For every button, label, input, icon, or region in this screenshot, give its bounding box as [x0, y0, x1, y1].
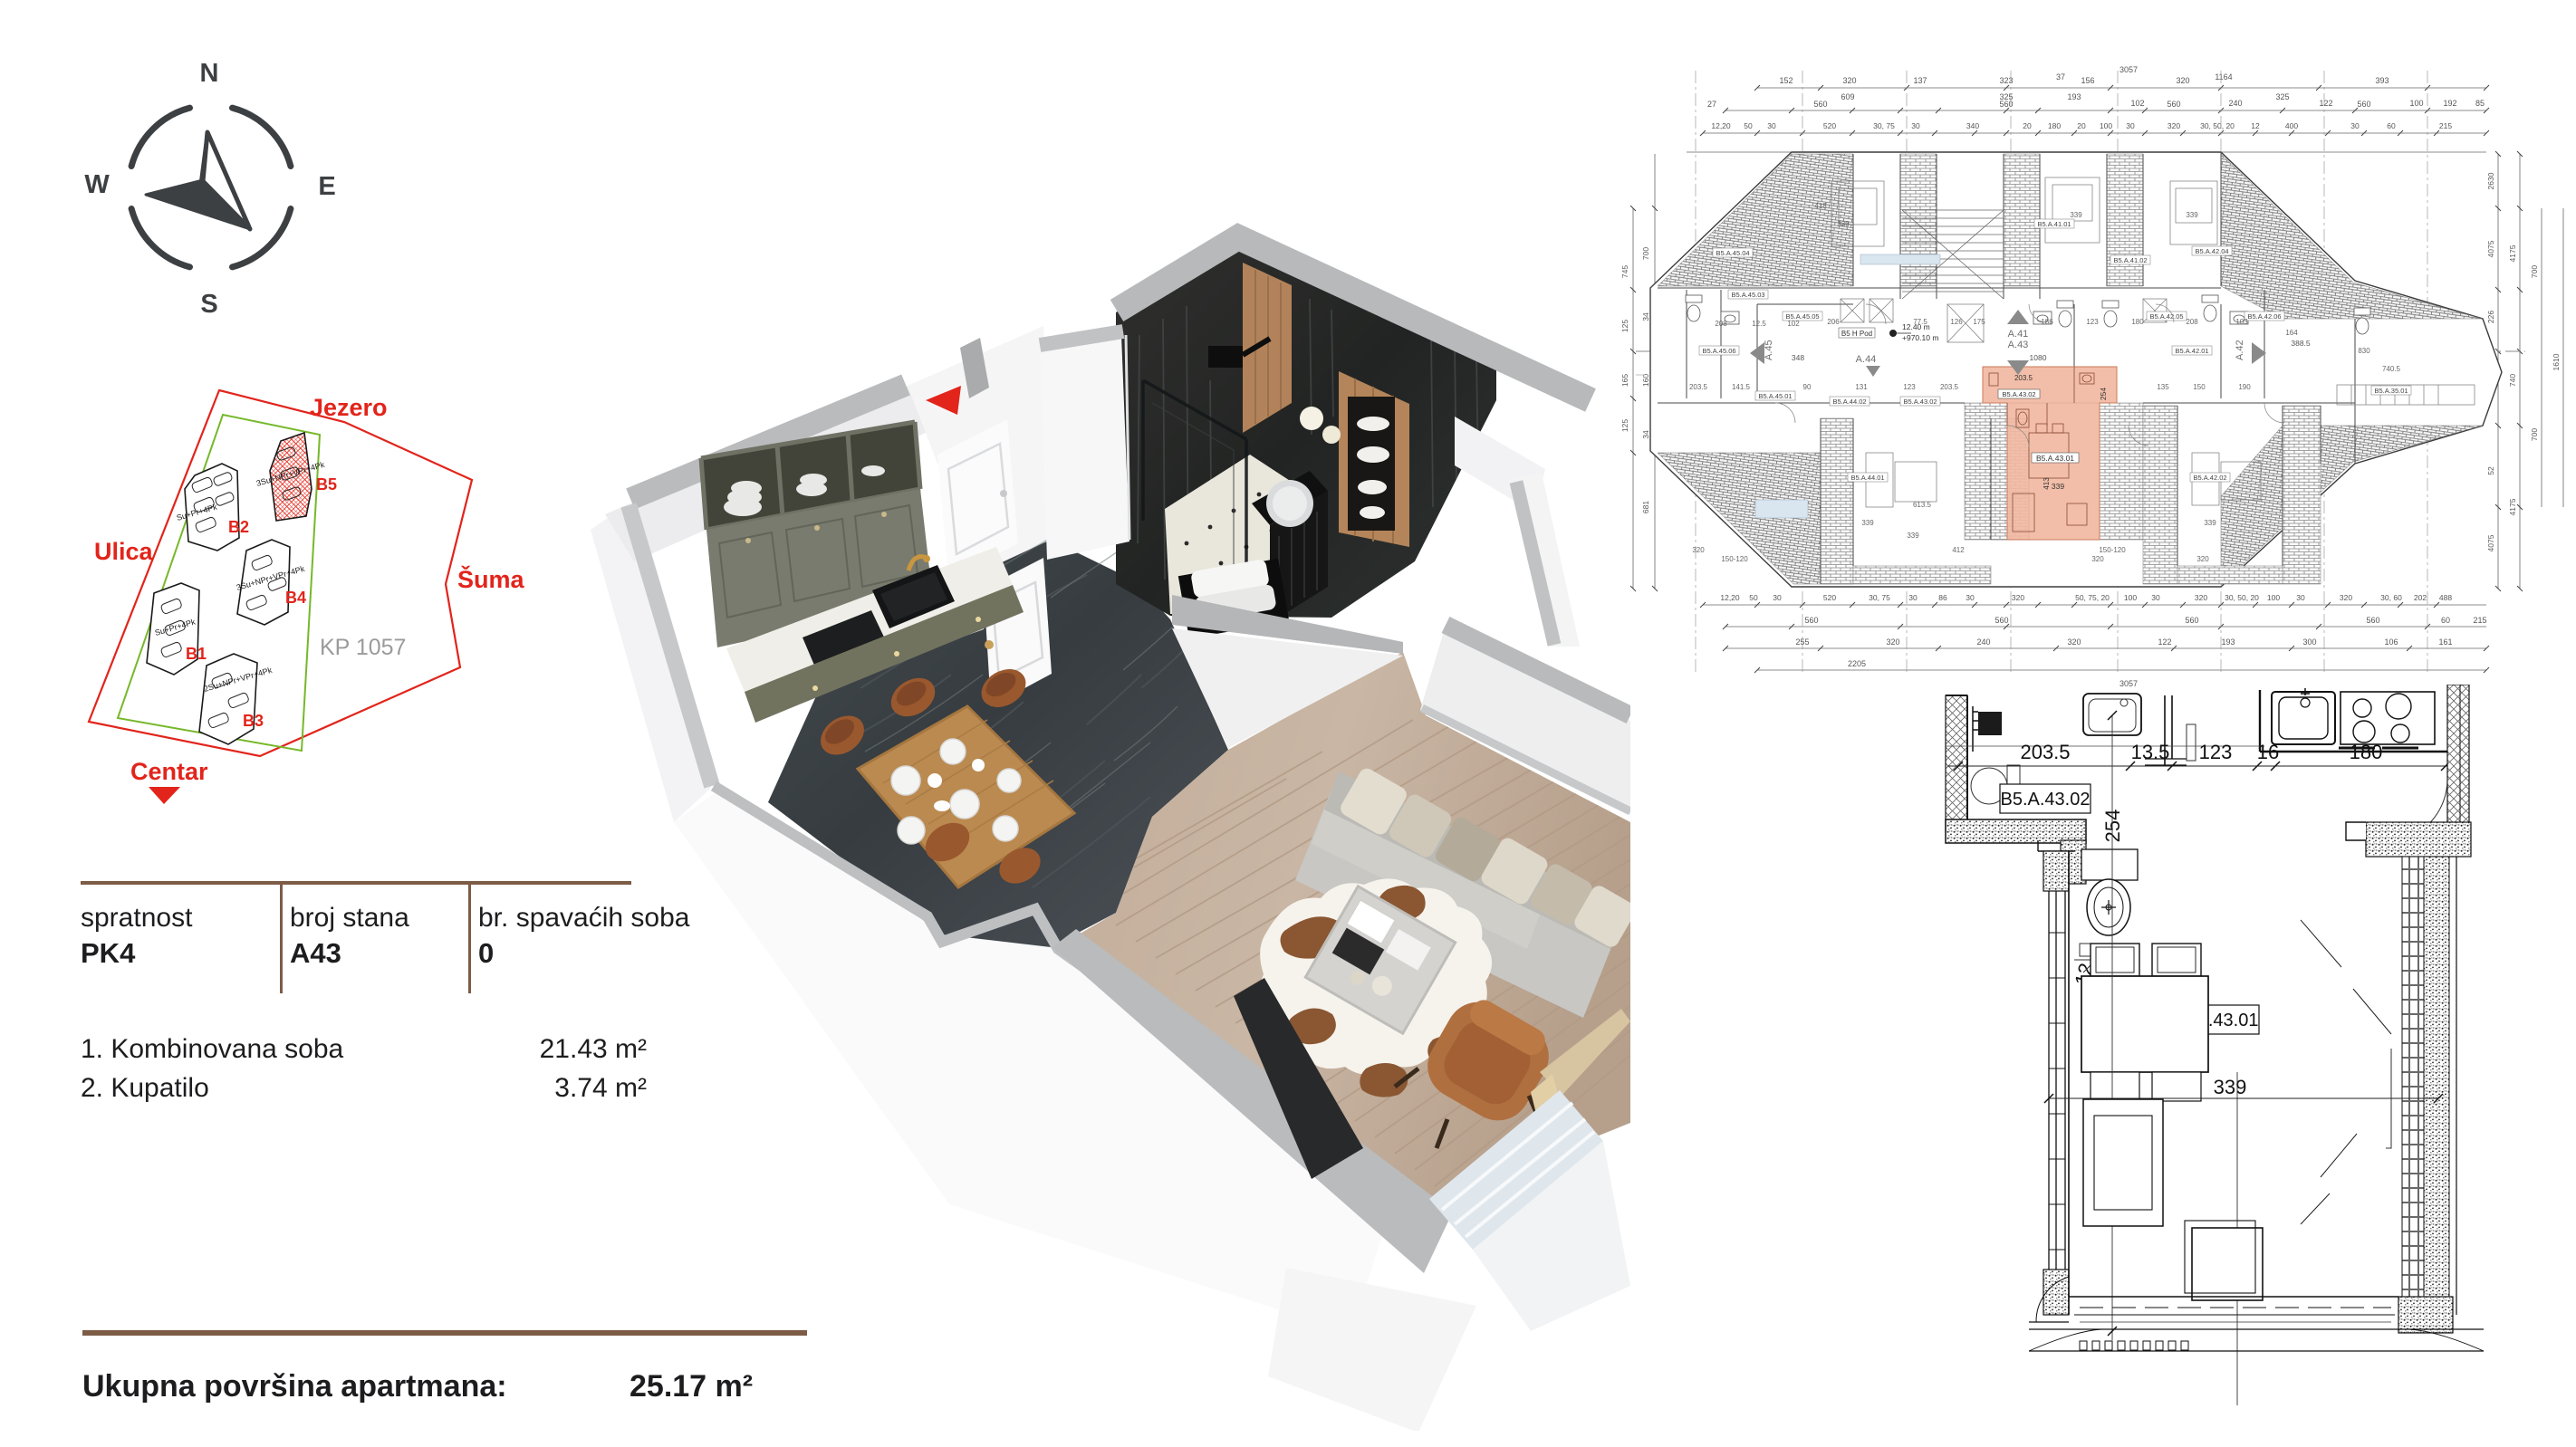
svg-text:103: 103 [2235, 318, 2248, 326]
svg-text:164: 164 [2285, 329, 2298, 337]
svg-text:A.42: A.42 [2235, 340, 2245, 360]
svg-text:2205: 2205 [1848, 659, 1866, 668]
svg-text:152: 152 [1779, 76, 1793, 85]
svg-text:B2: B2 [228, 518, 249, 536]
svg-text:400: 400 [2285, 121, 2298, 130]
svg-text:700: 700 [2530, 428, 2539, 441]
svg-text:203.5: 203.5 [1689, 383, 1708, 391]
svg-text:560: 560 [2185, 616, 2198, 625]
svg-text:30: 30 [1966, 593, 1975, 602]
svg-text:141.5: 141.5 [1732, 383, 1751, 391]
svg-text:339: 339 [2186, 211, 2198, 219]
svg-text:B5.A.42.05: B5.A.42.05 [2149, 312, 2183, 321]
svg-text:B5.A.44.02: B5.A.44.02 [1832, 398, 1866, 406]
svg-text:B5.A.41.02: B5.A.41.02 [2113, 256, 2147, 264]
svg-text:215: 215 [2439, 121, 2452, 130]
svg-text:560: 560 [1804, 616, 1818, 625]
svg-text:339: 339 [1907, 532, 1919, 540]
svg-text:190: 190 [2238, 383, 2251, 391]
svg-text:320: 320 [2340, 593, 2352, 602]
svg-text:320: 320 [1692, 546, 1705, 554]
svg-text:254: 254 [2101, 810, 2124, 843]
svg-text:150: 150 [2193, 383, 2206, 391]
svg-text:B5.A.43.01: B5.A.43.01 [2036, 454, 2074, 463]
svg-text:60: 60 [2441, 616, 2450, 625]
svg-text:254: 254 [2099, 388, 2108, 400]
svg-text:50: 50 [1744, 121, 1753, 130]
svg-text:100: 100 [2100, 121, 2112, 130]
svg-text:193: 193 [2221, 637, 2235, 647]
svg-text:413: 413 [2043, 477, 2051, 490]
svg-text:30: 30 [1767, 121, 1776, 130]
svg-text:30: 30 [2296, 593, 2305, 602]
svg-text:700: 700 [1641, 247, 1650, 260]
svg-text:4075: 4075 [2486, 534, 2495, 551]
svg-text:B5.A.42.01: B5.A.42.01 [2175, 347, 2208, 355]
svg-text:609: 609 [1841, 92, 1854, 101]
svg-text:135: 135 [2157, 383, 2169, 391]
svg-text:320: 320 [2176, 76, 2189, 85]
svg-text:60: 60 [2387, 121, 2396, 130]
svg-text:240: 240 [1976, 637, 1990, 647]
svg-text:240: 240 [2228, 99, 2242, 108]
svg-text:2630: 2630 [2486, 172, 2495, 189]
svg-text:+970.10 m: +970.10 m [1902, 333, 1938, 342]
svg-text:180: 180 [2048, 121, 2061, 130]
svg-text:393: 393 [2375, 76, 2389, 85]
svg-text:320: 320 [2167, 121, 2180, 130]
svg-text:37: 37 [2056, 72, 2065, 81]
svg-text:B5.A.45.03: B5.A.45.03 [1731, 291, 1764, 299]
svg-text:34: 34 [1641, 312, 1650, 321]
svg-text:A.44: A.44 [1856, 354, 1877, 365]
svg-text:320: 320 [1842, 76, 1856, 85]
svg-text:165: 165 [1620, 374, 1629, 387]
svg-text:102: 102 [1787, 320, 1800, 328]
svg-text:160: 160 [1641, 374, 1650, 387]
svg-text:320: 320 [2067, 637, 2081, 647]
svg-text:325: 325 [2275, 92, 2289, 101]
svg-text:520: 520 [1823, 593, 1836, 602]
svg-text:34: 34 [1641, 430, 1650, 439]
svg-text:Šuma: Šuma [457, 565, 525, 593]
svg-text:4075: 4075 [2486, 240, 2495, 257]
svg-text:12,20: 12,20 [1720, 593, 1740, 602]
svg-text:388.5: 388.5 [2291, 339, 2311, 348]
svg-text:KP 1057: KP 1057 [320, 635, 406, 660]
svg-text:126: 126 [1950, 318, 1963, 326]
svg-text:30: 30 [1911, 121, 1920, 130]
svg-text:745: 745 [1620, 265, 1629, 278]
svg-text:418: 418 [1814, 202, 1827, 210]
svg-text:20: 20 [2077, 121, 2086, 130]
svg-text:N: N [200, 59, 219, 88]
svg-text:180: 180 [2131, 318, 2144, 326]
svg-text:30: 30 [2350, 121, 2360, 130]
svg-text:3057: 3057 [2119, 65, 2138, 74]
svg-text:202: 202 [2414, 593, 2427, 602]
svg-text:106: 106 [2384, 637, 2398, 647]
svg-text:12,20: 12,20 [1711, 121, 1731, 130]
svg-text:150-120: 150-120 [2099, 546, 2126, 554]
svg-text:30, 75: 30, 75 [1869, 593, 1890, 602]
svg-text:320: 320 [1886, 637, 1899, 647]
svg-text:560: 560 [2167, 100, 2180, 109]
svg-text:123: 123 [2199, 741, 2233, 763]
svg-text:320: 320 [2012, 593, 2024, 602]
svg-text:560: 560 [1813, 100, 1827, 109]
svg-text:123: 123 [2086, 318, 2099, 326]
svg-text:681: 681 [1641, 501, 1650, 513]
svg-text:300: 300 [2302, 637, 2316, 647]
svg-text:30: 30 [2126, 121, 2135, 130]
svg-text:B5.A.41.01: B5.A.41.01 [2037, 220, 2071, 228]
svg-text:Ulica: Ulica [94, 538, 154, 565]
svg-text:830: 830 [2358, 347, 2370, 355]
svg-text:77.5: 77.5 [1913, 318, 1927, 326]
svg-text:13.5: 13.5 [2131, 741, 2170, 763]
svg-text:100: 100 [2267, 593, 2280, 602]
svg-text:150-120: 150-120 [1721, 555, 1748, 563]
svg-text:125: 125 [1620, 419, 1629, 432]
svg-text:4175: 4175 [2508, 244, 2517, 262]
svg-text:340: 340 [1966, 121, 1979, 130]
svg-text:12: 12 [2251, 121, 2260, 130]
svg-text:27: 27 [1707, 100, 1716, 109]
svg-text:100: 100 [2409, 99, 2423, 108]
svg-text:30, 50, 20: 30, 50, 20 [2225, 593, 2259, 602]
svg-text:560: 560 [2366, 616, 2379, 625]
svg-text:Centar: Centar [130, 758, 208, 785]
svg-text:20: 20 [2023, 121, 2032, 130]
svg-text:52: 52 [2486, 466, 2495, 475]
svg-text:339: 339 [2052, 482, 2064, 491]
svg-text:320: 320 [2091, 555, 2104, 563]
svg-text:175: 175 [1973, 318, 1985, 326]
svg-text:B5.A.45.06: B5.A.45.06 [1702, 347, 1735, 355]
svg-text:192: 192 [2443, 99, 2456, 108]
svg-text:E: E [318, 172, 335, 201]
svg-text:203.5: 203.5 [1940, 383, 1959, 391]
svg-text:B5: B5 [316, 475, 337, 494]
svg-text:30, 75: 30, 75 [1873, 121, 1895, 130]
svg-text:137: 137 [1913, 76, 1927, 85]
svg-text:131: 131 [1855, 383, 1868, 391]
svg-text:85: 85 [2475, 99, 2485, 108]
svg-text:W: W [84, 170, 110, 199]
svg-text:320: 320 [2196, 555, 2209, 563]
svg-text:4175: 4175 [2508, 498, 2517, 515]
svg-text:1164: 1164 [2215, 72, 2232, 81]
svg-text:193: 193 [2067, 92, 2081, 101]
svg-text:339: 339 [1861, 519, 1874, 527]
svg-text:122: 122 [2158, 637, 2171, 647]
svg-text:412: 412 [1952, 546, 1965, 554]
svg-text:339: 339 [2204, 519, 2216, 527]
svg-text:339: 339 [2214, 1076, 2247, 1098]
svg-text:100: 100 [2124, 593, 2137, 602]
svg-text:30: 30 [1773, 593, 1782, 602]
svg-text:613.5: 613.5 [1913, 501, 1932, 509]
svg-text:B5.A.45.01: B5.A.45.01 [1758, 392, 1792, 400]
svg-text:123: 123 [1903, 383, 1916, 391]
svg-text:B5.A.43.02: B5.A.43.02 [2002, 390, 2035, 398]
svg-text:226: 226 [2486, 311, 2495, 323]
svg-text:Jezero: Jezero [310, 394, 388, 421]
svg-text:156: 156 [2081, 76, 2094, 85]
svg-text:B1: B1 [186, 645, 207, 663]
svg-text:339: 339 [2070, 211, 2082, 219]
svg-text:520: 520 [1823, 121, 1836, 130]
svg-text:B5.A.42.06: B5.A.42.06 [2247, 312, 2281, 321]
svg-text:A.41: A.41 [2008, 329, 2029, 340]
svg-text:B5.A.42.02: B5.A.42.02 [2193, 474, 2226, 482]
svg-text:488: 488 [2439, 593, 2452, 602]
svg-text:560: 560 [2357, 100, 2370, 109]
svg-text:1080: 1080 [2030, 353, 2047, 362]
svg-text:30: 30 [2151, 593, 2160, 602]
svg-text:A.45: A.45 [1764, 340, 1774, 360]
svg-text:215: 215 [2473, 616, 2486, 625]
svg-text:125: 125 [1620, 320, 1629, 332]
svg-text:208: 208 [1715, 320, 1727, 328]
svg-text:740: 740 [2508, 374, 2517, 387]
svg-text:320: 320 [2195, 593, 2207, 602]
svg-text:208: 208 [2186, 318, 2198, 326]
svg-text:339: 339 [1837, 220, 1850, 228]
svg-text:B5.A.35.01: B5.A.35.01 [2374, 387, 2408, 395]
svg-text:B5.A.45.04: B5.A.45.04 [1716, 249, 1749, 257]
svg-text:30, 60: 30, 60 [2380, 593, 2402, 602]
svg-text:S: S [200, 290, 217, 319]
svg-text:203.5: 203.5 [2014, 374, 2033, 382]
svg-text:348: 348 [1792, 353, 1804, 362]
svg-text:B5.A.43.02: B5.A.43.02 [2001, 790, 2091, 810]
svg-text:740.5: 740.5 [2382, 365, 2401, 373]
svg-text:206: 206 [1827, 318, 1840, 326]
svg-text:B5.A.42.04: B5.A.42.04 [2195, 247, 2228, 255]
svg-text:1610: 1610 [2552, 353, 2561, 370]
svg-text:86: 86 [1938, 593, 1947, 602]
svg-text:203.5: 203.5 [2020, 741, 2070, 763]
svg-text:B5 H Pod: B5 H Pod [1841, 330, 1872, 338]
svg-text:700: 700 [2530, 265, 2539, 278]
svg-text:B4: B4 [285, 589, 306, 607]
svg-text:16: 16 [2257, 741, 2279, 763]
svg-text:30, 50, 20: 30, 50, 20 [2200, 121, 2235, 130]
svg-text:90: 90 [1803, 383, 1812, 391]
svg-text:B5.A.43.02: B5.A.43.02 [1903, 398, 1937, 406]
svg-text:102: 102 [2130, 99, 2144, 108]
svg-text:A.43: A.43 [2008, 340, 2029, 350]
svg-text:50: 50 [1749, 593, 1758, 602]
svg-text:122: 122 [2319, 99, 2332, 108]
svg-text:B5.A.44.01: B5.A.44.01 [1850, 474, 1884, 482]
svg-text:30: 30 [1908, 593, 1918, 602]
svg-text:180: 180 [2350, 741, 2383, 763]
svg-text:12.5: 12.5 [1752, 320, 1766, 328]
svg-text:50, 75, 20: 50, 75, 20 [2075, 593, 2110, 602]
svg-text:B3: B3 [243, 712, 264, 730]
svg-text:560: 560 [1994, 616, 2008, 625]
svg-text:161: 161 [2438, 637, 2452, 647]
